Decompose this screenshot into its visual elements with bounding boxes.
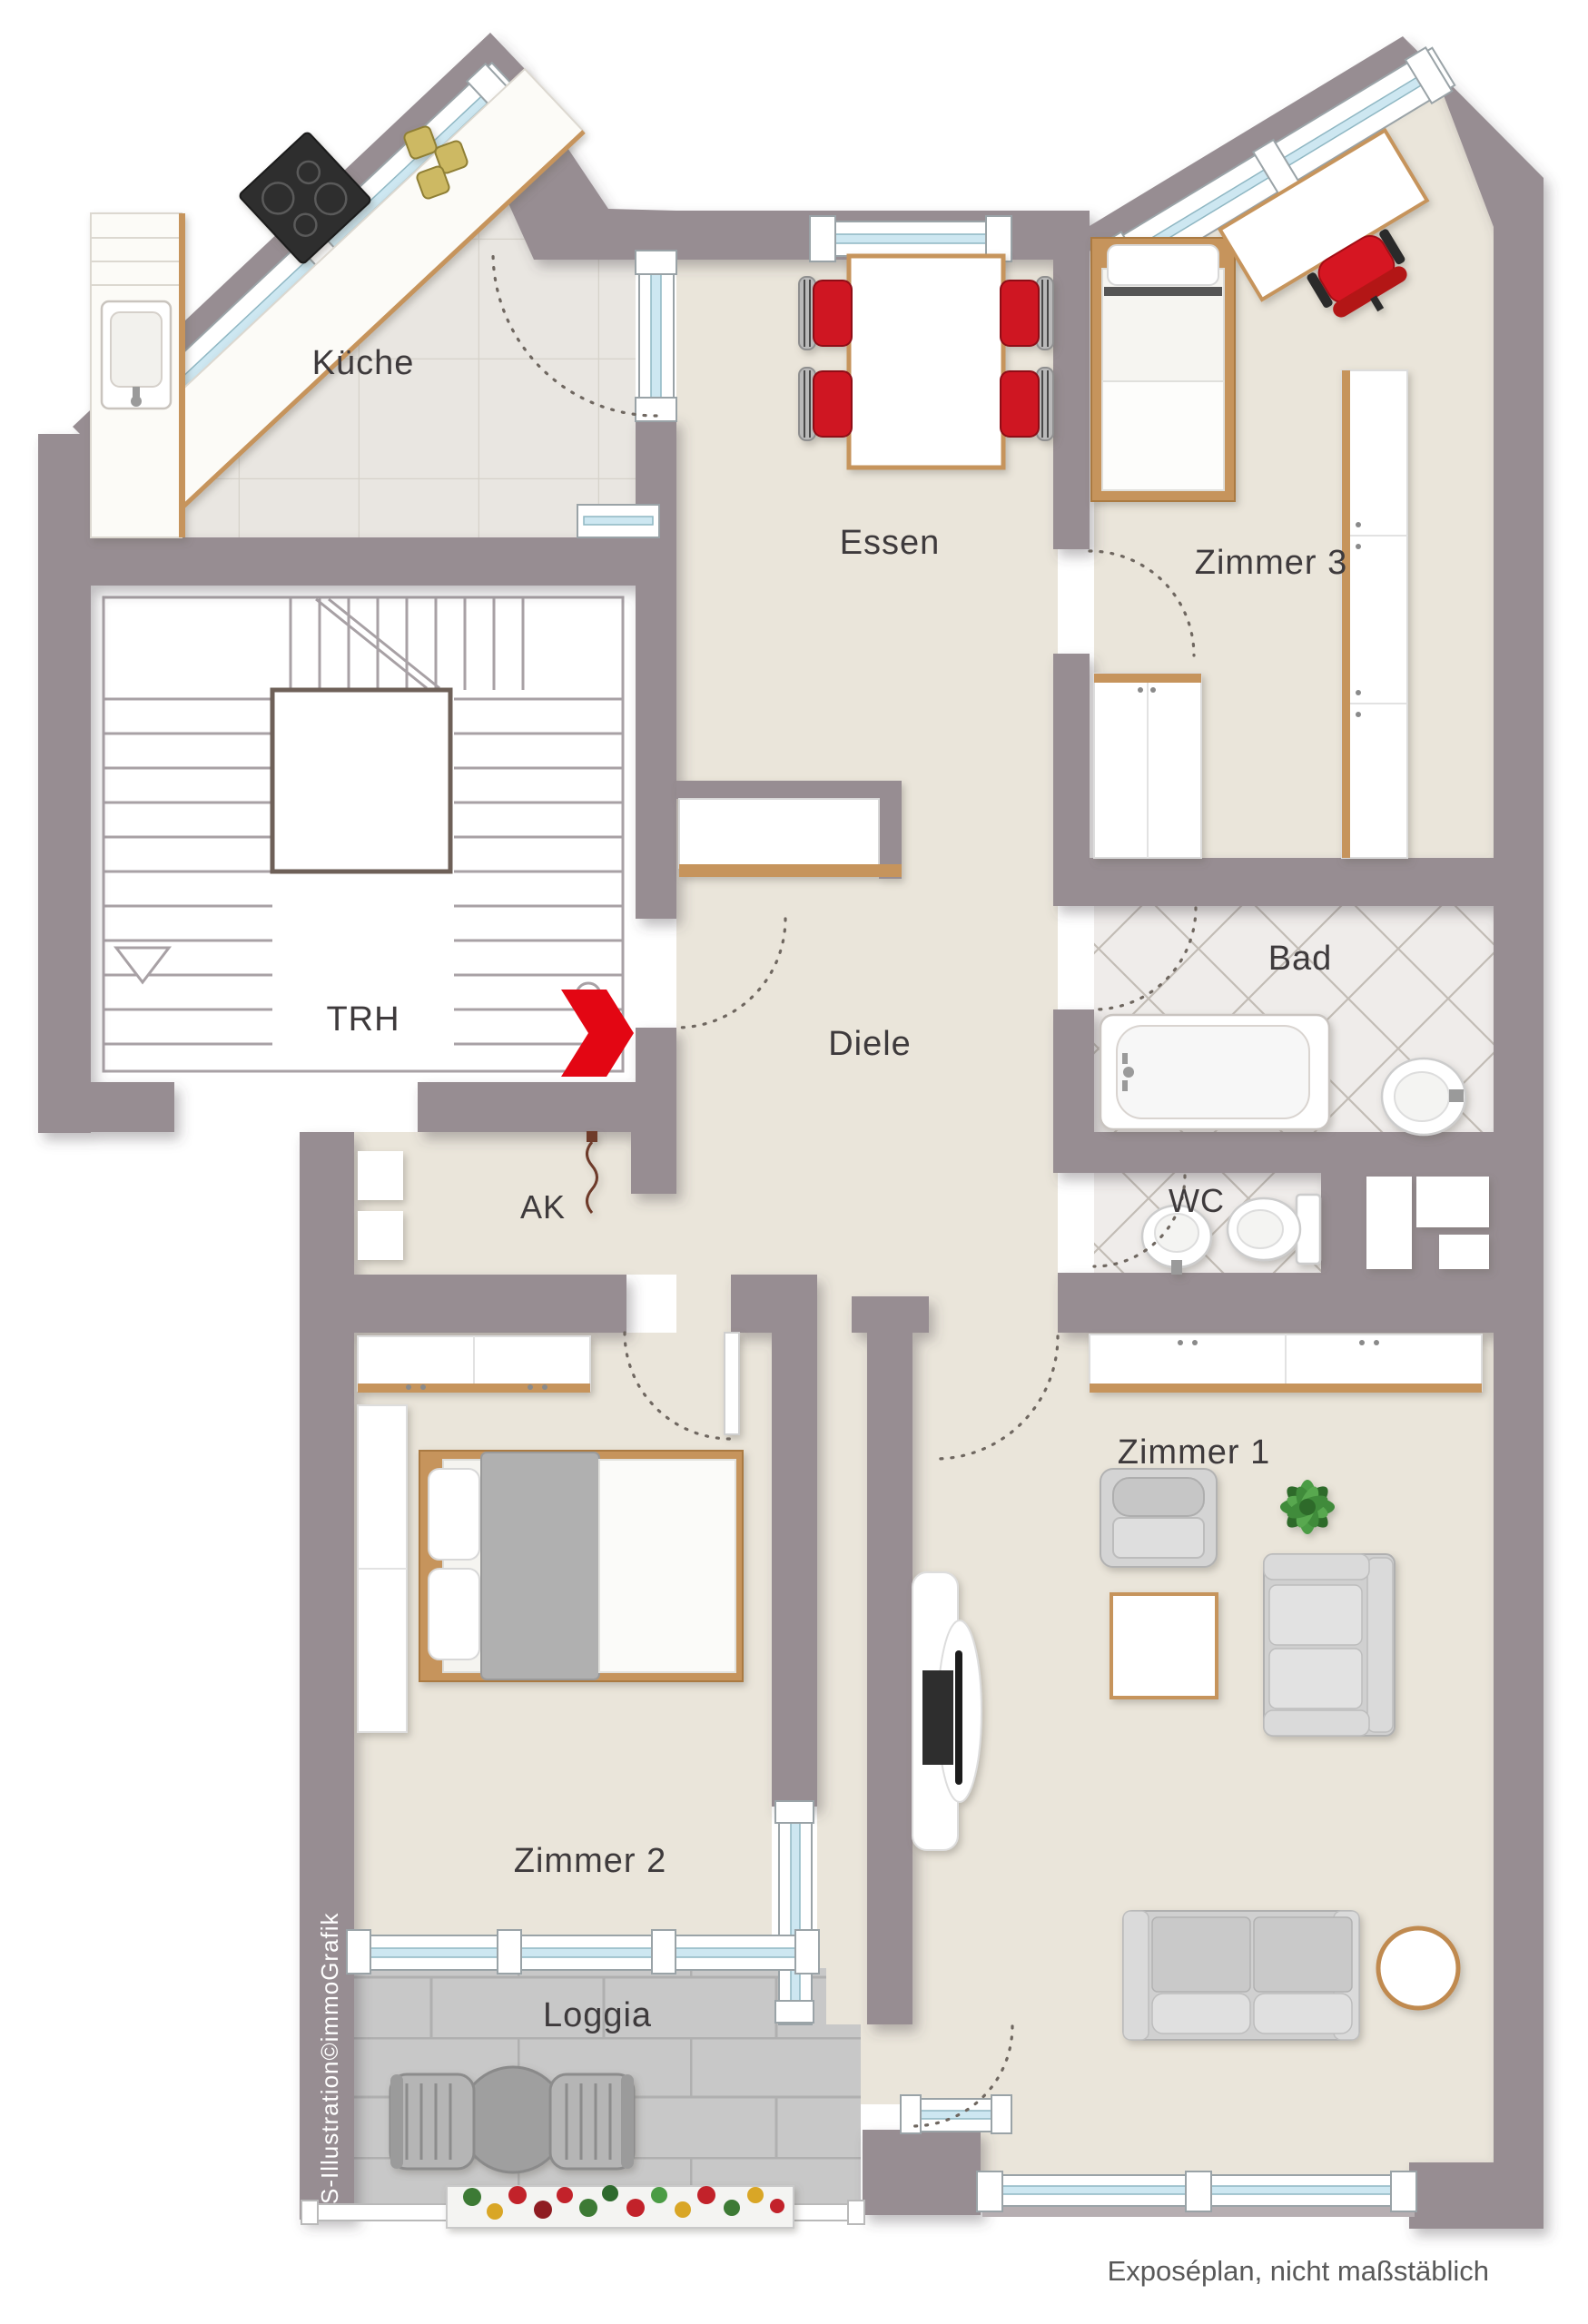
- wardrobe-zimmer2: [358, 1336, 590, 1393]
- room-label-ak: AK: [520, 1188, 566, 1226]
- dining-chair: [799, 368, 852, 440]
- room-label-essen: Essen: [840, 524, 941, 562]
- room-label-zimmer2: Zimmer 2: [514, 1842, 666, 1880]
- wall-trh-south-left: [38, 1082, 174, 1132]
- wall-zimmer2-east: [772, 1333, 817, 1807]
- floor-plan: Küche Essen Zimmer 3 TRH Diele Bad WC AK…: [0, 0, 1588, 2324]
- window-corridor-loggia: [775, 1801, 814, 2024]
- kitchen-sink: [102, 301, 171, 409]
- bathtub: [1100, 1015, 1329, 1129]
- dining-chair: [1001, 368, 1053, 440]
- door-kitchen-glazed: [636, 251, 676, 421]
- dining-table: [849, 256, 1003, 468]
- wall-loggia-corner: [863, 2130, 981, 2215]
- sideboard-zimmer1: [1090, 1334, 1482, 1393]
- wall-kitchen-south: [38, 537, 636, 586]
- coffee-table: [1111, 1594, 1217, 1698]
- dining-chair: [799, 277, 852, 350]
- room-label-zimmer3: Zimmer 3: [1195, 544, 1347, 582]
- toilet: [1228, 1195, 1320, 1264]
- wall-bad-wc-divider: [1053, 1132, 1494, 1173]
- door-leaf-zimmer2: [725, 1333, 739, 1434]
- wall-bottomright-corner: [1409, 2162, 1544, 2229]
- room-label-kueche: Küche: [312, 344, 415, 382]
- wall-zimmer1-north: [1058, 1273, 1544, 1333]
- wardrobe-zimmer3: [1342, 370, 1407, 858]
- door-loggia-glazed: [901, 2095, 1011, 2133]
- wall-bad-north: [1053, 858, 1544, 906]
- footer-note: Exposéplan, nicht maßstäblich: [1108, 2255, 1489, 2287]
- room-label-diele: Diele: [828, 1025, 912, 1063]
- wall-trh-south-right: [418, 1082, 676, 1132]
- window-zimmer1-south: [977, 2171, 1416, 2217]
- wall-trh-east-upper: [636, 586, 676, 919]
- wall-zimmer3-west-b: [1053, 654, 1090, 858]
- wall-corridor-cap: [852, 1296, 929, 1333]
- wall-zimmer2-north-a: [354, 1275, 626, 1333]
- room-label-zimmer1: Zimmer 1: [1118, 1433, 1270, 1472]
- sofa-bottom: [1123, 1911, 1359, 2040]
- room-label-trh: TRH: [326, 1000, 399, 1039]
- cabinet-zimmer3: [1094, 674, 1201, 858]
- room-label-wc: WC: [1169, 1182, 1225, 1219]
- window-zimmer2-loggia: [347, 1930, 819, 1974]
- side-table: [1378, 1928, 1458, 2008]
- tv: [922, 1670, 953, 1765]
- wardrobe-niche: [676, 781, 902, 879]
- flower-box: [447, 2185, 794, 2228]
- wall-bad-west: [1053, 1009, 1094, 1132]
- credit-text: S-Illustration©immoGrafik: [316, 1912, 343, 2204]
- dining-chair: [1001, 277, 1053, 350]
- double-bed: [419, 1451, 743, 1681]
- sofa-right: [1264, 1554, 1395, 1736]
- kitchen-counter-wood-strip: [179, 213, 185, 537]
- wall-ext-right: [1494, 209, 1544, 2229]
- bed-zimmer3: [1091, 238, 1235, 501]
- loggia-chair: [550, 2074, 634, 2169]
- plant: [1280, 1480, 1335, 1534]
- armchair: [1100, 1469, 1217, 1567]
- room-label-loggia: Loggia: [543, 1996, 652, 2034]
- wall-corridor-east: [867, 1333, 912, 2024]
- loggia-floor-ext: [826, 2024, 861, 2204]
- wall-entry-pillar: [631, 1132, 676, 1194]
- window-kitchen-transom: [577, 505, 659, 537]
- stair-landing: [272, 690, 450, 871]
- wall-trh-east-lower: [636, 1028, 676, 1082]
- wall-kitchen-east-lower: [636, 418, 676, 586]
- wall-zimmer2-north-b: [731, 1275, 817, 1333]
- loggia-chair: [390, 2074, 474, 2169]
- sink-bad: [1382, 1059, 1465, 1135]
- room-label-bad: Bad: [1268, 940, 1333, 978]
- wall-zimmer3-west-a: [1053, 260, 1090, 549]
